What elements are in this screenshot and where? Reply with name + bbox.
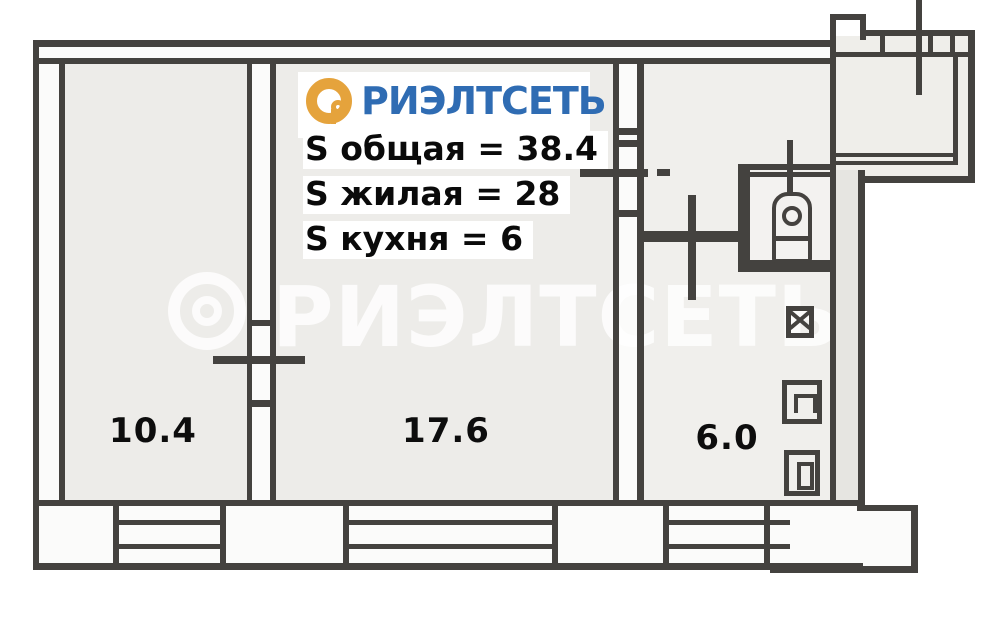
door-mark-kitchen [688, 195, 696, 300]
wall-right-outer [858, 170, 865, 505]
wall-wc-left [738, 164, 750, 272]
sink-fixture [786, 306, 814, 338]
door-mark-room2 [580, 169, 648, 177]
area-total-label: S общая = 38.4 [303, 131, 608, 169]
balcony-step-right [860, 14, 866, 40]
realtset-logo-text: РИЭЛТСЕТЬ [361, 79, 606, 123]
wall-wc-top-b [738, 172, 830, 177]
window2-jamb-left [343, 500, 349, 570]
stove-glyph [794, 394, 817, 413]
window1-pane-line2 [113, 544, 226, 549]
porch-floor [860, 505, 915, 570]
balcony-wall-right-outer [968, 30, 975, 183]
balcony-wall-right-inner [953, 52, 958, 164]
wall-room1-room2-a [247, 58, 252, 505]
window2-pane-line1 [343, 520, 558, 525]
door-mark-room2-dash [657, 169, 670, 176]
window3-jamb-left [663, 500, 669, 570]
wall-wc-top-a [738, 164, 830, 170]
realtset-logo-icon [306, 78, 352, 124]
window2-pane-line2 [343, 544, 558, 549]
porch-wall-bottom [770, 566, 918, 573]
window3-jamb-right [764, 500, 770, 570]
balcony-wall-bottom-inner1 [832, 153, 958, 157]
wall-room2-hall-a [613, 58, 619, 505]
window1-jamb-right [220, 500, 226, 570]
window3-pane-line1 [663, 520, 770, 525]
cabinet-fixture [784, 450, 820, 496]
balcony-glazing-bottom [832, 52, 968, 57]
toilet-bowl-icon [782, 206, 802, 226]
toilet-tank-icon [776, 236, 808, 241]
watermark-logo-icon-inner [192, 296, 222, 326]
cabinet-glyph [797, 462, 814, 490]
logo-p-bowl [331, 100, 345, 114]
area-living-label: S жилая = 28 [303, 176, 570, 214]
porch-wall-right [911, 505, 918, 573]
wall-room1-room2-rung2 [247, 400, 276, 407]
balcony-glazing-divider1 [880, 30, 885, 57]
wall-room2-hall-rung1 [613, 128, 644, 135]
building-edge-line [916, 0, 922, 95]
area-kitchen-label: S кухня = 6 [303, 221, 533, 259]
wall-room1-room2-rung1 [247, 320, 276, 326]
wall-top-outer [33, 40, 832, 47]
window1-jamb-left [113, 500, 119, 570]
wall-room2-hall-b [637, 58, 644, 505]
wall-top-inner [33, 58, 832, 64]
wall-right-inner [830, 170, 836, 505]
watermark-text: РИЭЛТСЕТЬ [272, 268, 842, 366]
wall-bottom-inner [33, 500, 863, 506]
window3-extra-rung2 [770, 544, 790, 549]
balcony-step-left [830, 14, 836, 40]
room2-area-label: 17.6 [401, 411, 491, 451]
wall-room1-room2-b [270, 58, 276, 505]
wall-room2-hall-rung2 [613, 140, 644, 147]
stove-fixture [782, 380, 822, 424]
window3-extra-rung1 [770, 520, 790, 525]
wall-room2-hall-rung3 [613, 210, 644, 217]
wall-bottom-outer [33, 563, 863, 570]
balcony-wall-left [830, 38, 836, 178]
kitchen-area-label: 6.0 [690, 418, 764, 458]
balcony-wall-bottom-inner2 [832, 161, 958, 165]
window3-pane-line2 [663, 544, 770, 549]
toilet-fixture [772, 192, 812, 263]
door-mark-room1 [213, 356, 305, 364]
wall-left-inner [59, 58, 65, 500]
floor-plan: РИЭЛТСЕТЬ [0, 0, 1000, 618]
balcony-glazing-divider2 [928, 30, 933, 57]
window1-pane-line1 [113, 520, 226, 525]
window2-jamb-right [552, 500, 558, 570]
wall-left-outer [33, 40, 39, 570]
balcony-wall-bottom-outer [860, 176, 975, 183]
room1-area-label: 10.4 [108, 411, 198, 451]
porch-wall-top [857, 505, 918, 511]
